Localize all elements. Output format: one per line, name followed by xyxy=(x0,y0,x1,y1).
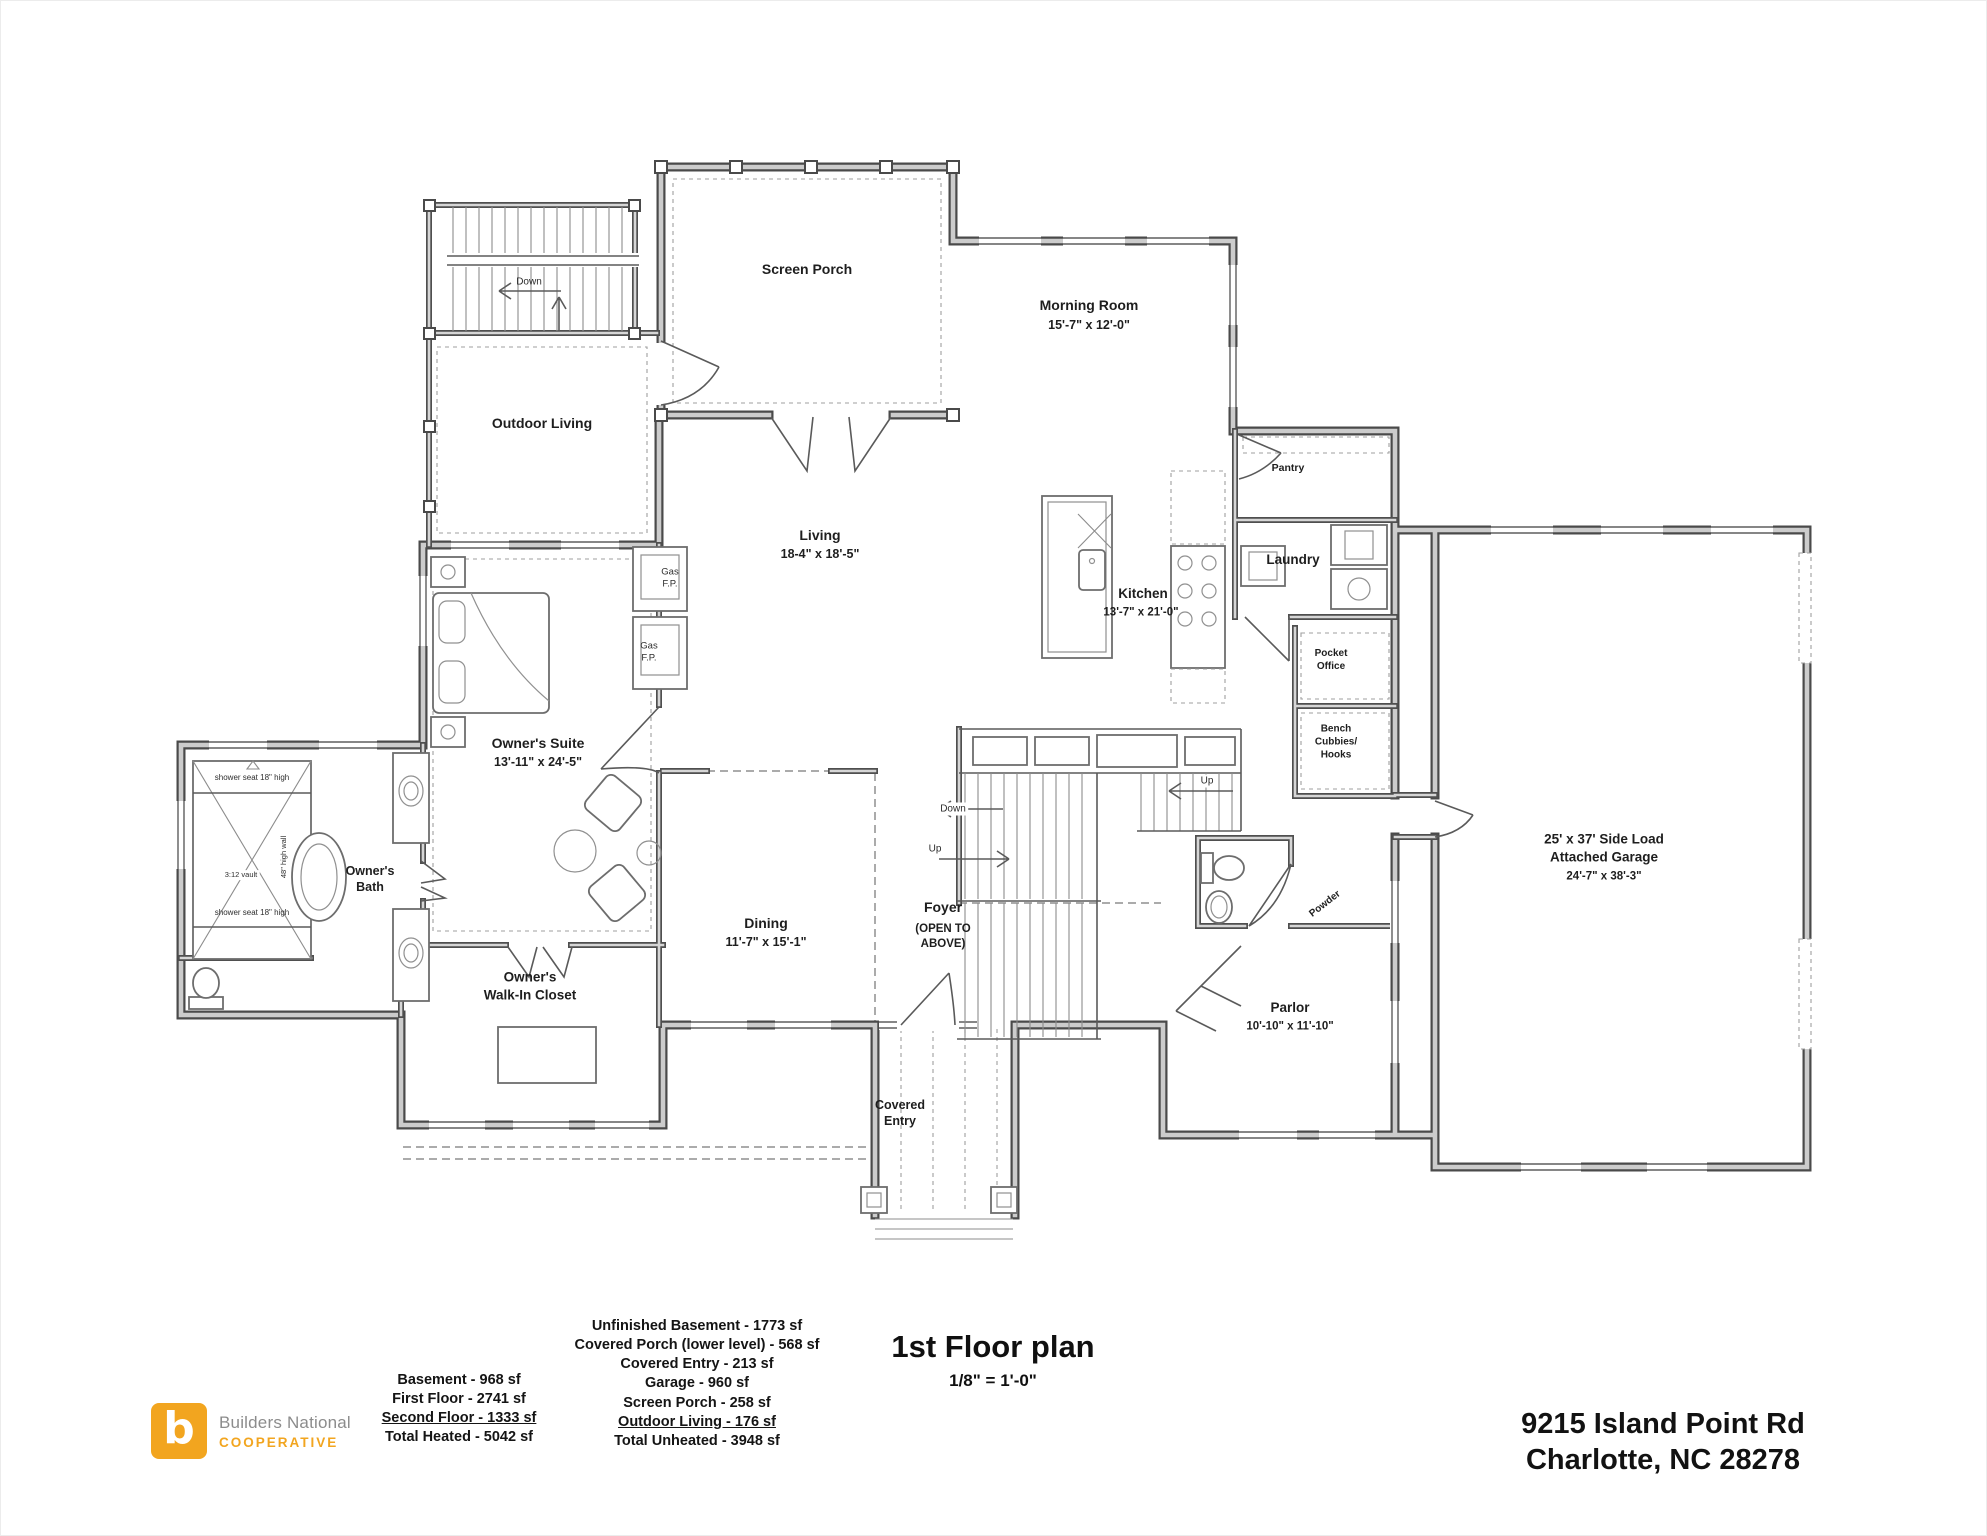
wall-openings xyxy=(655,343,957,1031)
floor-plan-drawing xyxy=(1,1,1987,1536)
room-label-owners-closet: Owner's Walk-In Closet xyxy=(484,968,577,1003)
room-label-kitchen: Kitchen xyxy=(1118,585,1168,603)
logo-mark-letter: b xyxy=(163,1407,195,1451)
room-label-living: Living xyxy=(799,526,840,544)
room-label-covered-entry: Covered Entry xyxy=(875,1097,925,1130)
room-note-foyer-open-above: (OPEN TO ABOVE) xyxy=(915,922,970,952)
plan-scale: 1/8" = 1'-0" xyxy=(949,1371,1037,1391)
room-label-owners-suite: Owner's Suite xyxy=(492,734,585,752)
room-label-bench-cubbies: Bench Cubbies/ Hooks xyxy=(1315,723,1357,762)
area-row: Covered Entry - 213 sf xyxy=(575,1355,820,1374)
room-dims-dining: 11'-7" x 15'-1" xyxy=(725,934,806,950)
logo-mark-icon: b xyxy=(151,1403,207,1459)
area-row: Total Unheated - 3948 sf xyxy=(575,1432,820,1451)
annotation-deck-stairs-down: Down xyxy=(516,276,542,289)
annotation-gas-fireplace-lower: Gas F.P. xyxy=(640,641,657,666)
room-dims-owners-suite: 13'-11" x 24'-5" xyxy=(494,754,582,770)
annotation-stairs-up: Up xyxy=(927,843,944,856)
room-label-outdoor-living: Outdoor Living xyxy=(492,414,592,432)
annotation-high-wall: 48" high wall xyxy=(279,836,289,878)
address-line-1: 9215 Island Point Rd xyxy=(1521,1407,1805,1443)
closet-island xyxy=(498,1027,596,1083)
area-table-heated: Basement - 968 sf First Floor - 2741 sf … xyxy=(382,1371,537,1448)
annotation-stairs-up-right: Up xyxy=(1199,775,1216,788)
area-row: Screen Porch - 258 sf xyxy=(575,1394,820,1413)
fireplaces xyxy=(633,547,687,689)
annotation-shower-seat-bottom: shower seat 18" high xyxy=(215,908,289,918)
deck-staircase xyxy=(447,207,639,331)
room-dims-living: 18-4" x 18'-5" xyxy=(781,546,860,562)
room-label-owners-bath: Owner's Bath xyxy=(346,863,395,896)
logo-name: Builders National xyxy=(219,1413,351,1433)
address-line-2: Charlotte, NC 28278 xyxy=(1521,1443,1805,1479)
area-row: Basement - 968 sf xyxy=(382,1371,537,1390)
covered-entry-steps xyxy=(875,1219,1013,1239)
powder-fixtures xyxy=(1201,853,1244,923)
annotation-shower-seat-top: shower seat 18" high xyxy=(215,773,289,783)
area-row: Total Heated - 5042 sf xyxy=(382,1428,537,1447)
area-row: Garage - 960 sf xyxy=(575,1374,820,1393)
room-dims-kitchen: 13'-7" x 21'-0" xyxy=(1103,606,1178,621)
room-dims-parlor: 10'-10" x 11'-10" xyxy=(1246,1020,1333,1035)
laundry-appliances xyxy=(1331,525,1387,609)
room-label-morning-room: Morning Room xyxy=(1040,296,1139,314)
room-dims-morning-room: 15'-7" x 12'-0" xyxy=(1048,317,1130,333)
project-address: 9215 Island Point Rd Charlotte, NC 28278 xyxy=(1521,1407,1805,1479)
area-table-unheated: Unfinished Basement - 1773 sf Covered Po… xyxy=(575,1317,820,1451)
area-row: Second Floor - 1333 sf xyxy=(382,1409,537,1428)
room-label-screen-porch: Screen Porch xyxy=(762,260,852,278)
annotation-vault: 3:12 vault xyxy=(223,870,260,880)
area-row: Unfinished Basement - 1773 sf xyxy=(575,1317,820,1336)
interior-walls xyxy=(181,431,1435,1025)
room-label-laundry: Laundry xyxy=(1266,551,1319,569)
page-title: 1st Floor plan xyxy=(891,1329,1094,1365)
logo-subname: COOPERATIVE xyxy=(219,1435,351,1450)
room-label-foyer: Foyer xyxy=(924,898,962,916)
annotation-stairs-down: Down xyxy=(938,803,968,816)
builders-national-logo: b Builders National COOPERATIVE xyxy=(151,1403,351,1459)
annotation-gas-fireplace-upper: Gas F.P. xyxy=(661,567,678,592)
room-label-dining: Dining xyxy=(744,914,788,932)
area-row: Outdoor Living - 176 sf xyxy=(575,1413,820,1432)
room-label-garage: 25' x 37' Side Load Attached Garage xyxy=(1544,830,1664,865)
room-dims-garage: 24'-7" x 38'-3" xyxy=(1566,870,1641,885)
room-label-parlor: Parlor xyxy=(1270,999,1309,1017)
floor-plan-sheet: Screen Porch Morning Room 15'-7" x 12'-0… xyxy=(0,0,1987,1536)
room-label-pocket-office: Pocket Office xyxy=(1315,647,1348,673)
area-row: Covered Porch (lower level) - 568 sf xyxy=(575,1336,820,1355)
room-label-pantry: Pantry xyxy=(1272,462,1305,476)
area-row: First Floor - 2741 sf xyxy=(382,1390,537,1409)
logo-text: Builders National COOPERATIVE xyxy=(219,1413,351,1450)
exterior-walls xyxy=(181,167,1807,1215)
